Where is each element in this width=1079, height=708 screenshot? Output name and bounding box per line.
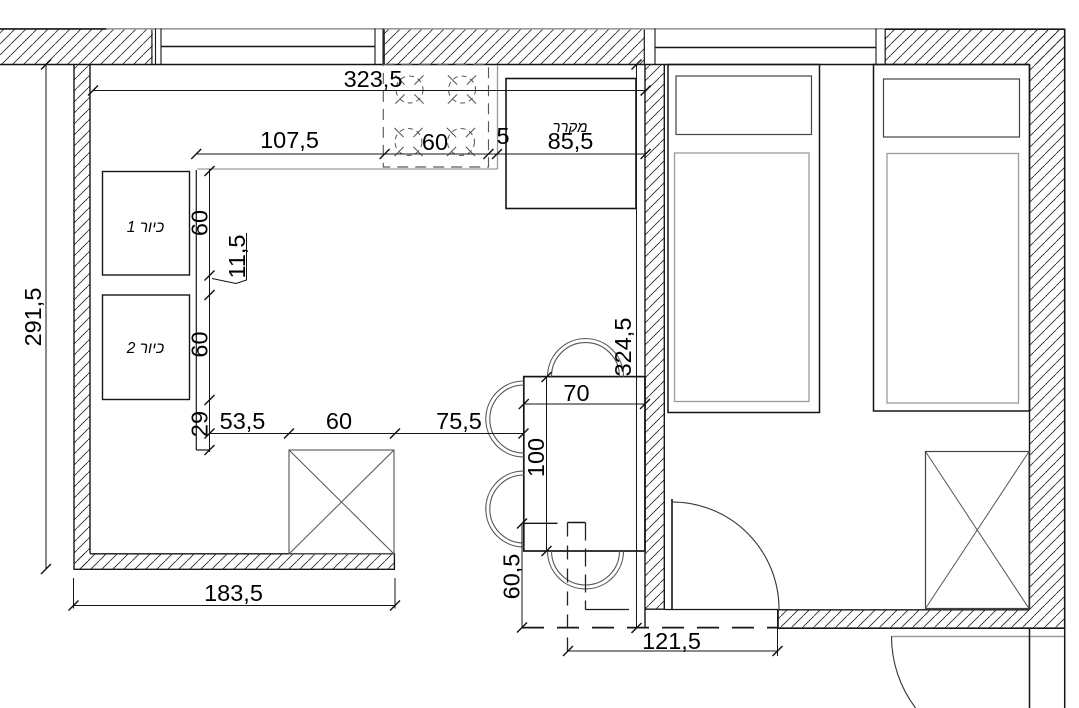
svg-text:53,5: 53,5 [220,408,266,434]
svg-text:60: 60 [422,129,448,155]
svg-text:70: 70 [563,380,589,406]
svg-text:1 כיור: 1 כיור [127,219,164,236]
svg-text:60: 60 [326,408,352,434]
svg-text:60: 60 [187,210,213,236]
svg-text:85,5: 85,5 [548,128,594,154]
svg-text:75,5: 75,5 [436,408,482,434]
svg-text:107,5: 107,5 [260,127,319,153]
svg-text:60,5: 60,5 [499,554,525,600]
svg-text:121,5: 121,5 [642,628,701,654]
svg-text:323,5: 323,5 [344,66,403,92]
svg-text:2 כיור: 2 כיור [126,340,164,357]
svg-text:29: 29 [187,411,213,437]
svg-text:100: 100 [523,438,549,477]
svg-text:324,5: 324,5 [610,318,636,377]
svg-text:183,5: 183,5 [204,580,263,606]
svg-text:60: 60 [187,331,213,357]
svg-text:291,5: 291,5 [20,288,46,347]
svg-text:5: 5 [496,123,509,149]
